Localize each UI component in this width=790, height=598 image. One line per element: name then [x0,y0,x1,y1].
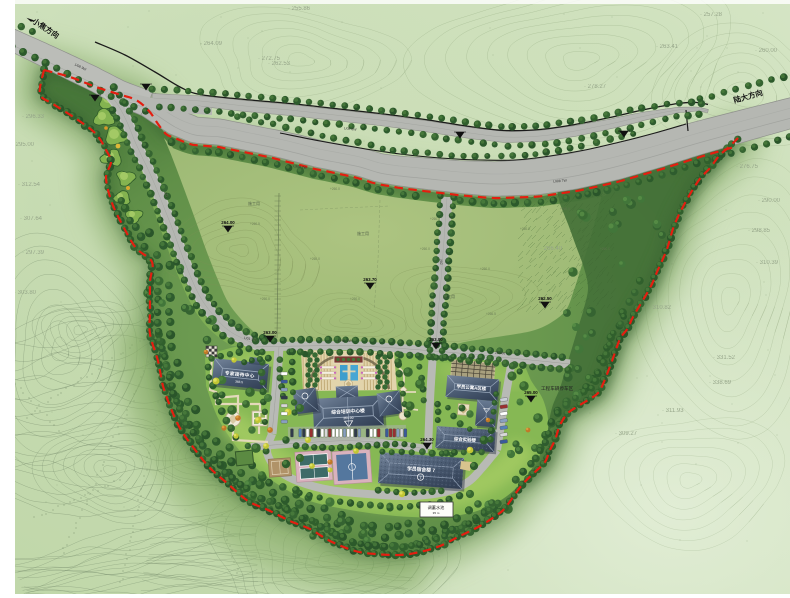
svg-text:+260.5: +260.5 [250,222,260,226]
svg-text:· 266.40: · 266.40 [540,246,563,252]
svg-text:264.30: 264.30 [420,437,434,442]
svg-text:· 295.00: · 295.00 [12,142,35,148]
svg-text:+260.0: +260.0 [420,247,430,251]
svg-text:· 307.64: · 307.64 [20,216,43,222]
svg-text:+260.0: +260.0 [310,257,320,261]
svg-text:+260.0: +260.0 [430,217,440,221]
svg-text:+260.0: +260.0 [350,297,360,301]
svg-text:263.00: 263.00 [429,337,443,342]
svg-text:· 338.69: · 338.69 [709,380,732,386]
svg-text:· 309.27: · 309.27 [615,431,638,437]
svg-text:366.5: 366.5 [235,380,244,385]
svg-text:· 297.39: · 297.39 [22,250,45,256]
svg-text:· 257.28: · 257.28 [700,12,723,18]
svg-text:· 310.39: · 310.39 [756,260,779,266]
svg-text:调蓄水池: 调蓄水池 [428,504,446,511]
svg-text:· 263.41: · 263.41 [656,44,679,50]
svg-text:263.00: 263.00 [263,330,277,335]
svg-text:· 262.53: · 262.53 [268,61,291,67]
svg-text:+266.5: +266.5 [486,312,496,316]
svg-text:· 298.85: · 298.85 [748,228,771,234]
svg-text:· 264.09: · 264.09 [200,41,223,47]
svg-text:+260.0: +260.0 [520,227,530,231]
svg-text:施工用: 施工用 [357,230,369,236]
svg-text:264.00: 264.00 [221,220,235,225]
svg-text:· 260.00: · 260.00 [755,48,778,54]
svg-text:262.50: 262.50 [538,296,552,301]
svg-text:· 331.52: · 331.52 [713,355,736,361]
svg-text:· 290.00: · 290.00 [758,198,781,204]
svg-text:· 296.33: · 296.33 [22,114,45,120]
svg-text:工程车辆停车区: 工程车辆停车区 [541,385,574,392]
svg-text:+260.0: +260.0 [480,267,490,271]
svg-text:· 278.27: · 278.27 [584,84,607,90]
svg-text:265.00: 265.00 [524,390,538,395]
svg-text:· 276.75: · 276.75 [736,164,759,170]
svg-text:· 255.86: · 255.86 [288,6,311,12]
svg-text:+260.0: +260.0 [600,247,610,251]
svg-text:· 311.93: · 311.93 [662,408,684,414]
svg-text:· 310.82: · 310.82 [649,305,672,311]
svg-text:· 312.54: · 312.54 [18,182,41,188]
svg-text:263.70: 263.70 [363,277,377,282]
svg-text:+260.0: +260.0 [330,187,340,191]
svg-text:35 m: 35 m [433,511,440,515]
svg-text:施工用: 施工用 [443,293,455,299]
svg-text:292: 292 [439,259,443,265]
svg-text:+260.0: +260.0 [560,207,570,211]
svg-text:+260.0: +260.0 [260,297,270,301]
svg-text:LY01 3W: LY01 3W [338,339,352,343]
svg-text:263.00: 263.00 [495,351,506,356]
svg-text:施工用: 施工用 [248,200,260,206]
svg-text:364.00: 364.00 [343,416,354,421]
svg-text:· 303.80: · 303.80 [14,290,37,296]
